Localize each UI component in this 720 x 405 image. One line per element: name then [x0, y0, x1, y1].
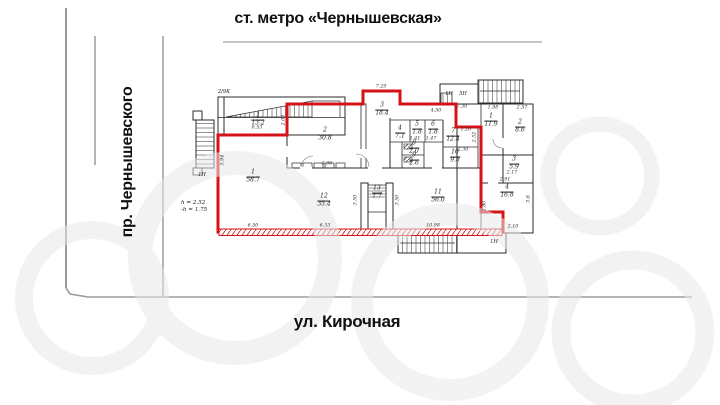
dimension-label: 6.50: [248, 224, 259, 229]
door-openings: [286, 138, 505, 185]
ceiling-height-line1: h = 2.52: [181, 200, 207, 207]
street-bottom-label: ул. Кирочная: [294, 312, 401, 332]
building-storey-note: 2/9К: [218, 89, 230, 95]
room-area: 56.0: [431, 198, 444, 205]
dimension-label: 2.52: [473, 132, 478, 143]
dimension-label: 6.33: [320, 224, 331, 229]
dimension-label: 3.96: [322, 162, 333, 167]
dimension-label: 1.41: [410, 137, 421, 142]
room-area: 1.8: [412, 130, 422, 137]
dimension-label: 4.50: [431, 109, 442, 114]
room-area: 8.6: [515, 128, 525, 135]
dimension-label: 10.98: [426, 224, 440, 229]
room-label-11-9: 111.9: [484, 114, 497, 129]
dimension-label: 7.29: [376, 85, 387, 90]
room-label-7-1: 47.1: [395, 126, 405, 141]
dimension-label: 1.20: [461, 128, 472, 133]
unit-label: 1Н: [445, 91, 453, 97]
dimension-label: 3.50: [354, 195, 359, 206]
ceiling-height-line2: -h = 1.75: [181, 207, 207, 214]
floor-plan-drawing: [0, 0, 720, 405]
room-area: 18.4: [375, 111, 388, 118]
room-label-30-8: 230.8: [318, 128, 331, 143]
dimension-label: 5.94: [221, 155, 226, 166]
dimension-label: 2.00: [282, 115, 287, 126]
room-area: 35.4: [317, 202, 330, 209]
room-area: 1.8: [428, 130, 438, 137]
dimension-label: 2.30: [458, 148, 469, 153]
room-label-58-7: 158.7: [246, 170, 259, 185]
unit-label: 1Н: [490, 239, 498, 245]
dimension-label: 2.91: [500, 178, 511, 183]
room-area: 2.6: [409, 161, 419, 168]
room-area: 1.7: [372, 194, 382, 201]
room-label-2-6: 92.6: [409, 153, 419, 168]
room-label-16-8: 416.8: [500, 185, 513, 200]
dimension-label: 1.80: [483, 201, 488, 212]
room-label-5-9: 35.9: [509, 157, 519, 172]
room-area: 16.8: [500, 193, 513, 200]
dimension-label: 1.98: [488, 106, 499, 111]
room-label-12-4: 712.4: [446, 129, 459, 144]
room-label-8-6: 28.6: [515, 120, 525, 135]
dimension-label: 3.8: [527, 195, 532, 203]
room-area: 12.4: [446, 137, 459, 144]
room-label-1-8a: 51.8: [412, 122, 422, 137]
room-area: 7.1: [395, 134, 405, 141]
room-label-1-7: 131.7: [372, 186, 382, 201]
dimension-label: 1.47: [426, 137, 437, 142]
room-label-35-4: 1235.4: [317, 194, 330, 209]
room-area: 11.9: [484, 122, 497, 129]
room-label-56-0: 1156.0: [431, 190, 444, 205]
dimension-label: 3.50: [396, 195, 401, 206]
unit-label: 1Н: [198, 172, 206, 178]
dimension-label: 6.53: [252, 126, 263, 131]
room-area: 58.7: [246, 178, 259, 185]
dimension-label: 7.30: [457, 105, 468, 110]
room-area: 30.8: [318, 136, 331, 143]
ceiling-height-note: h = 2.52 -h = 1.75: [181, 200, 207, 214]
floor-plan-page: ст. метро «Чернышевская» пр. Чернышевско…: [0, 0, 720, 405]
unit-label: 5Н: [459, 91, 467, 97]
room-label-1-8b: 61.8: [428, 122, 438, 137]
dimension-label: 2.57: [517, 106, 528, 111]
street-left-label: пр. Чернышевского: [119, 87, 137, 238]
dimension-label: 2.10: [508, 225, 519, 230]
room-area: 9.8: [450, 158, 460, 165]
metro-station-label: ст. метро «Чернышевская»: [234, 10, 441, 28]
dimension-label: 2.17: [507, 171, 518, 176]
room-label-18-4: 318.4: [375, 103, 388, 118]
